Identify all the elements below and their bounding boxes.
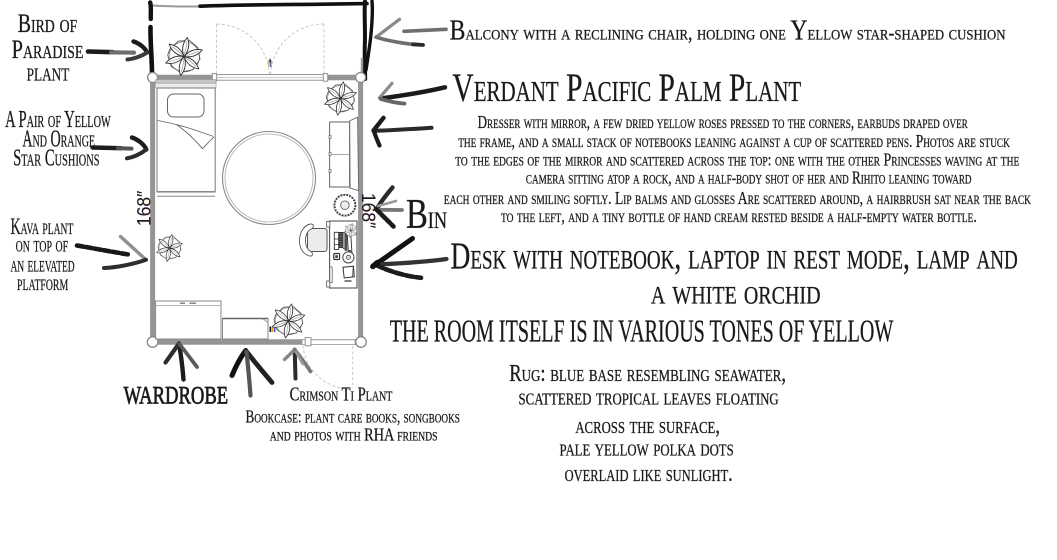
svg-text:camera sitting atop a rock, an: camera sitting atop a rock, and a half-b… bbox=[526, 169, 972, 188]
svg-text:WARDROBE: WARDROBE bbox=[124, 381, 228, 409]
svg-text:to the edges of the mirror and: to the edges of the mirror and scattered… bbox=[455, 151, 1019, 170]
svg-text:to the left, and a tiny bottle: to the left, and a tiny bottle of hand c… bbox=[501, 207, 977, 226]
svg-text:168″: 168″ bbox=[358, 193, 380, 229]
svg-text:Verdant Pacific Palm Plant: Verdant Pacific Palm Plant bbox=[452, 66, 801, 110]
svg-text:Balcony with a reclining chair: Balcony with a reclining chair, holding … bbox=[450, 15, 1006, 46]
svg-text:a white orchid: a white orchid bbox=[651, 271, 821, 311]
svg-text:Dresser with mirror, a few dri: Dresser with mirror, a few dried yellow … bbox=[478, 113, 969, 132]
svg-text:THE ROOM ITSELF IS IN VARIOUS: THE ROOM ITSELF IS IN VARIOUS TONES OF Y… bbox=[390, 313, 894, 349]
svg-text:overlaid like sunlight.: overlaid like sunlight. bbox=[565, 459, 733, 486]
svg-text:Bin: Bin bbox=[406, 191, 447, 238]
svg-text:pale yellow polka dots: pale yellow polka dots bbox=[560, 434, 734, 461]
svg-text:each other and smiling softly.: each other and smiling softly. Lip balms… bbox=[444, 189, 1031, 208]
svg-text:Star Cushions: Star Cushions bbox=[13, 145, 99, 172]
svg-text:and photos with RHA friends: and photos with RHA friends bbox=[270, 425, 438, 445]
svg-text:Bird of: Bird of bbox=[18, 10, 78, 39]
svg-text:plant: plant bbox=[27, 58, 70, 87]
svg-text:Crimson Ti Plant: Crimson Ti Plant bbox=[290, 382, 393, 405]
svg-text:168″: 168″ bbox=[133, 190, 155, 226]
svg-text:platform: platform bbox=[17, 271, 68, 296]
svg-text:the frame, and a small stack o: the frame, and a small stack of notebook… bbox=[458, 132, 1010, 151]
svg-text:scattered tropical leaves floa: scattered tropical leaves floating bbox=[519, 383, 779, 410]
